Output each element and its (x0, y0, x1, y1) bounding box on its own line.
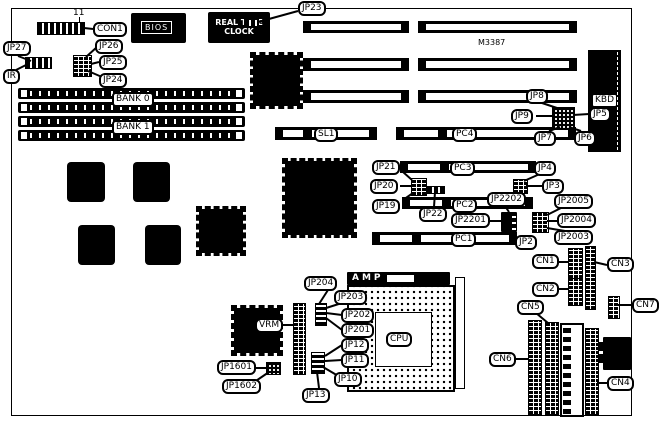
label-cn2: CN2 (532, 282, 559, 297)
floppy-edge-connector (560, 323, 584, 417)
label-jp12: JP12 (341, 338, 369, 353)
label-jp22: JP22 (419, 207, 447, 222)
label-jp203: JP203 (334, 290, 367, 305)
label-jp2202: JP2202 (487, 192, 526, 207)
amp-notch (387, 275, 414, 282)
label-jp2004: JP2004 (557, 213, 596, 228)
rtc-label-line2: CLOCK (208, 27, 270, 36)
qfp-chip-center (282, 158, 357, 238)
jp5-jp9-jumper-block (552, 107, 575, 129)
con1-connector (37, 22, 85, 35)
label-jp2201: JP2201 (451, 213, 490, 228)
label-sl1: SL1 (314, 127, 338, 142)
chip-square-1 (67, 162, 105, 202)
jp23-jumper (244, 19, 259, 27)
label-jp7: JP7 (534, 131, 556, 146)
label-jp27: JP27 (3, 41, 31, 56)
cn4-connector (585, 328, 599, 415)
chip-square-4 (145, 225, 181, 265)
cn5-connector (545, 322, 559, 415)
label-jp202: JP202 (341, 308, 374, 323)
label-jp201: JP201 (341, 323, 374, 338)
label-jp23: JP23 (298, 1, 326, 16)
label-jp20: JP20 (370, 179, 398, 194)
label-jp9: JP9 (511, 109, 533, 124)
chip-square-2 (133, 162, 170, 202)
label-cn7: CN7 (632, 298, 659, 313)
label-cn5: CN5 (517, 300, 544, 315)
power-connector (603, 337, 631, 370)
label-jp26: JP26 (95, 39, 123, 54)
motherboard-diagram: 11 BIOS REAL TIME CLOCK M3387 (0, 0, 661, 423)
isa-slot-3-right (418, 90, 577, 103)
label-jp1602: JP1602 (222, 379, 261, 394)
label-jp19: JP19 (372, 199, 400, 214)
jp201-jp204-jumper-strip (315, 303, 327, 326)
label-cn3: CN3 (607, 257, 634, 272)
label-jp2: JP2 (515, 235, 537, 250)
label-jp24: JP24 (99, 73, 127, 88)
cn3-connector (585, 246, 596, 310)
label-pc1: PC1 (451, 232, 476, 247)
bios-chip-label: BIOS (141, 21, 172, 34)
label-jp8: JP8 (526, 89, 548, 104)
jp19-jp21-jumper-block (411, 178, 427, 196)
label-jp2003: JP2003 (554, 230, 593, 245)
label-jp21: JP21 (372, 160, 400, 175)
cn6-connector (528, 320, 542, 415)
label-cn6: CN6 (489, 352, 516, 367)
ir-connector (25, 57, 52, 69)
label-jp1601: JP1601 (217, 360, 256, 375)
label-con1: CON1 (93, 22, 127, 37)
amp-label: AMP (352, 273, 384, 283)
label-cn4: CN4 (607, 376, 634, 391)
label-ir: IR (3, 69, 20, 84)
label-pc3: PC3 (450, 161, 475, 176)
cn1-connector (568, 248, 583, 279)
label-pc4: PC4 (452, 127, 477, 142)
real-time-clock-chip: REAL TIME CLOCK (208, 12, 270, 43)
label-cn1: CN1 (532, 254, 559, 269)
label-jp11: JP11 (341, 353, 369, 368)
label-vrm: VRM (255, 318, 283, 333)
vrm-connector (293, 303, 306, 375)
label-bank0: BANK 0 (112, 92, 154, 107)
jp10-jp13-jumper-strip (311, 352, 325, 374)
label-jp6: JP6 (574, 131, 596, 146)
label-cpu: CPU (386, 332, 412, 347)
amp-socket-bar: AMP (347, 272, 450, 285)
label-jp10: JP10 (334, 372, 362, 387)
chip-square-3 (78, 225, 115, 265)
label-bank1: BANK 1 (112, 120, 154, 135)
label-jp13: JP13 (302, 388, 330, 403)
kbd-dashed-edge (617, 52, 618, 150)
qfp-chip-top (250, 52, 303, 109)
isa-slot-1-right (418, 21, 577, 33)
jp22-jumper (427, 186, 445, 194)
jp24-jp26-jumper-block (73, 55, 92, 77)
label-jp2005: JP2005 (554, 194, 593, 209)
label-jp25: JP25 (99, 55, 127, 70)
isa-slot-2-right (418, 58, 577, 71)
label-jp4: JP4 (534, 161, 556, 176)
cpu-side-slot (455, 277, 465, 389)
m3387-chip-label: M3387 (478, 38, 505, 48)
isa-slot-2-left (303, 58, 409, 71)
rtc-label-line1: REAL TIME (208, 18, 270, 27)
jp2201-jp2202-component (501, 212, 517, 232)
label-kbd: KBD (592, 94, 617, 107)
cn7-connector (608, 296, 620, 319)
label-jp204: JP204 (304, 276, 337, 291)
isa-slot-3-left (303, 90, 409, 103)
label-pc2: PC2 (452, 198, 477, 213)
pin11-label: 11 (73, 8, 84, 18)
pc1-slot (372, 232, 517, 245)
isa-slot-1-left (303, 21, 409, 33)
jp1601-jp1602-jumper-block (266, 362, 281, 375)
label-jp5: JP5 (589, 107, 611, 122)
bios-chip: BIOS (131, 13, 186, 43)
cn2-connector (568, 278, 583, 306)
qfp-chip-left (196, 206, 246, 256)
jp2003-jp2005-jumper-block (532, 212, 549, 233)
label-jp3: JP3 (542, 179, 564, 194)
